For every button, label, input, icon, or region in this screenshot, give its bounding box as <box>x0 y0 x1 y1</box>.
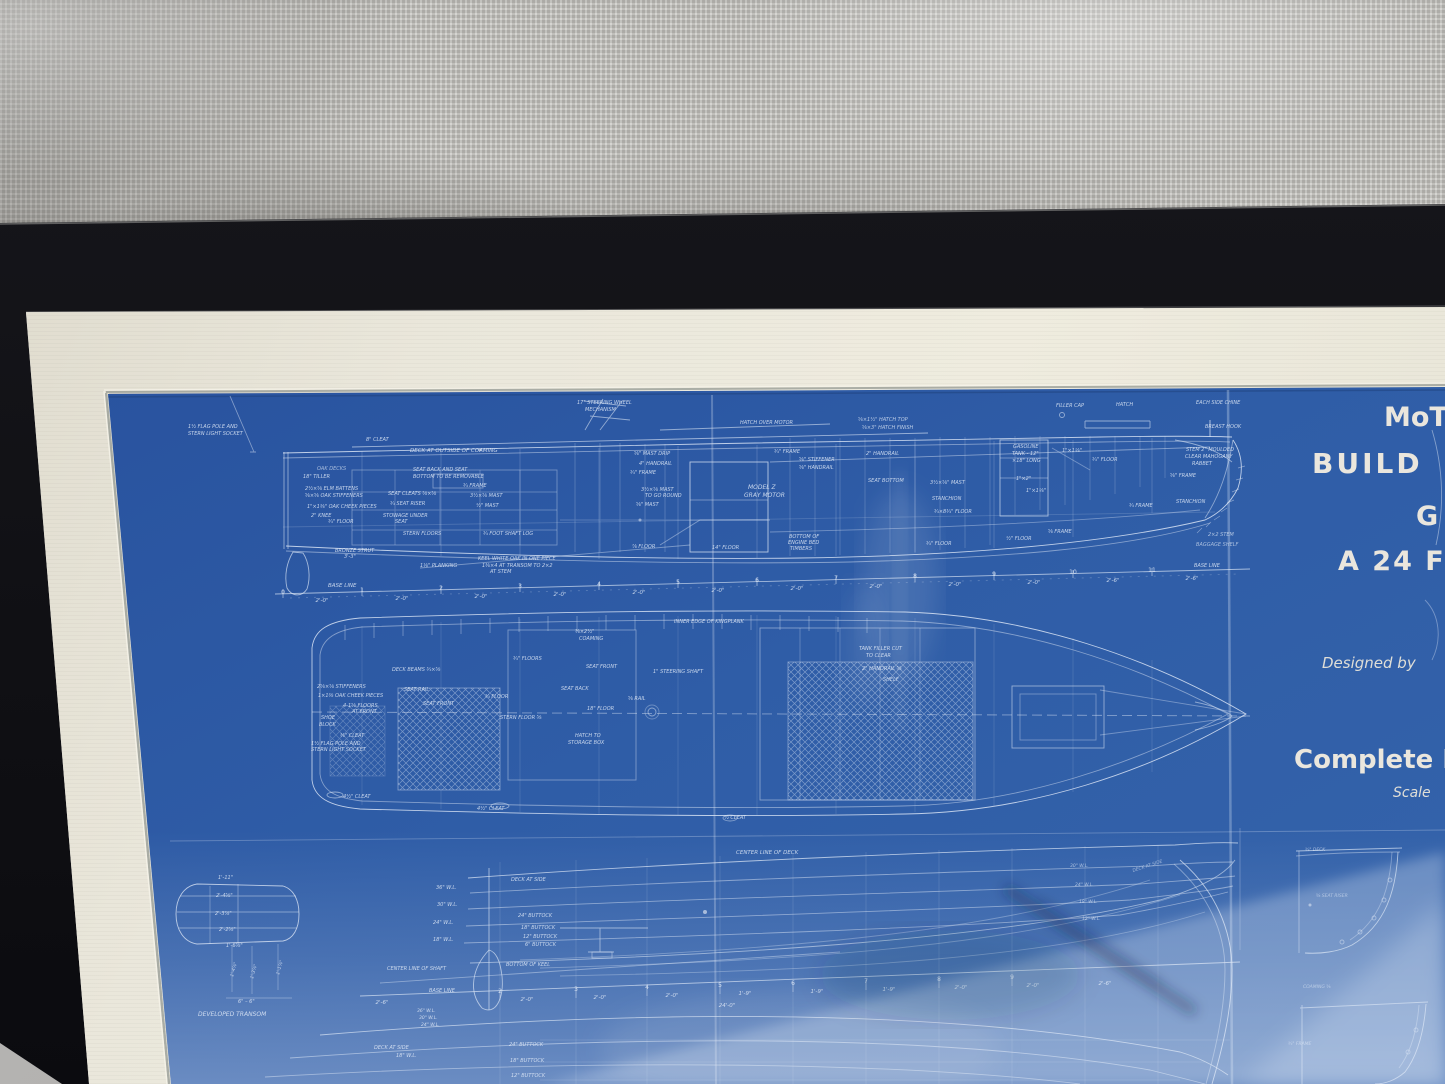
annotation-text: 0 <box>281 589 285 596</box>
annotation-text: 14" FLOOR <box>712 545 739 551</box>
annotation-text: BREAST HOOK <box>1205 424 1242 430</box>
annotation-text: 3½×⅝ MAST <box>470 492 504 499</box>
annotation-text: TO GO ROUND <box>645 493 682 499</box>
annotation-text: 7 <box>834 575 838 582</box>
annotation-text: SEAT FRONT <box>586 664 618 670</box>
annotation-text: SEAT BACK <box>561 686 589 692</box>
annotation-text: FILLER CAP <box>1056 403 1084 409</box>
annotation-text: 2'-0" <box>315 598 328 604</box>
annotation-text: ¾" FRAME <box>630 470 657 476</box>
annotation-text: 4½" CLEAT <box>477 805 505 812</box>
annotation-text: 2'-0" <box>711 588 724 594</box>
annotation-text: 2½×⅝ ELM BATTENS <box>305 485 359 492</box>
annotation-text: ¾" FLOOR <box>1092 457 1118 463</box>
annotation-text: BLOCK <box>319 722 336 728</box>
annotation-text: DECK BEAMS ¾×⅝ <box>392 667 440 673</box>
annotation-text: 9 <box>992 571 996 578</box>
annotation-text: BOTTOM TO BE REMOVABLE <box>413 474 485 480</box>
annotation-text: 1"×1⅜" OAK CHEEK PIECES <box>307 504 378 510</box>
annotation-text: BASE LINE <box>328 583 357 589</box>
annotation-text: ⅜" CLEAT <box>340 733 365 739</box>
annotation-text: 2'-6" <box>1106 578 1119 584</box>
designed-by: Designed by <box>1322 654 1417 672</box>
annotation-text: SEAT <box>395 519 408 525</box>
annotation-text: STERN FLOORS <box>403 531 442 537</box>
annotation-text: 3½×⅝" MAST <box>930 479 966 486</box>
annotation-text: 3½×⅝ MAST <box>641 486 675 493</box>
annotation-text: ¾" FLOOR <box>328 519 354 525</box>
annotation-text: ¾ FRAME <box>463 483 488 489</box>
annotation-text: HATCH OVER MOTOR <box>740 420 793 426</box>
annotation-text: SEAT BACK AND SEAT <box>413 467 468 473</box>
annotation-text: ½" MAST <box>476 502 500 509</box>
annotation-text: 2" HANDRAIL <box>866 451 899 457</box>
annotation-text: MECHANISM <box>585 407 617 413</box>
annotation-text: KEEL WHITE OAK IN ONE PIECE <box>478 556 557 562</box>
annotation-text: STERN LIGHT SOCKET <box>188 431 244 437</box>
annotation-text: SEAT CLEATS ⅝×⅝ <box>388 491 436 497</box>
annotation-text: AT STEM <box>489 569 512 575</box>
annotation-text: ½" FLOOR <box>1006 535 1032 542</box>
annotation-text: 2'-0" <box>790 586 803 592</box>
annotation-text: 1½ FLAG POLE AND <box>188 423 238 430</box>
annotation-text: DECK AT OUTSIDE OF COAMING <box>410 448 498 454</box>
annotation-text: ½ CLEAT <box>724 814 747 821</box>
annotation-text: HATCH <box>1116 402 1133 408</box>
annotation-text: 2'-0" <box>1027 580 1040 586</box>
annotation-text: HATCH TO <box>575 733 601 739</box>
annotation-text: 3 <box>518 583 522 590</box>
annotation-text: 8" CLEAT <box>366 437 390 443</box>
annotation-text: ⅝×3" HATCH FINISH <box>862 425 914 431</box>
annotation-text: 5 <box>676 579 680 586</box>
annotation-text: 4" HANDRAIL <box>639 461 672 467</box>
annotation-text: ¾ SEAT RISER <box>390 501 425 507</box>
annotation-text: STERN LIGHT SOCKET <box>311 747 367 753</box>
annotation-text: ⅝ RAIL <box>628 696 646 702</box>
annotation-text: ⅝×⅝ OAK STIFFENERS <box>305 493 364 499</box>
annotation-text: ⅞ FLOOR <box>632 544 655 550</box>
annotation-text: ¾×8¾" FLOOR <box>934 509 972 515</box>
annotation-text: RABBET <box>1192 461 1213 467</box>
annotation-text: ⅜×2½" <box>575 628 594 635</box>
framed-blueprint-photo: MoTBUILDGA 24 FDesigned byComplete HScal… <box>0 0 1445 1084</box>
annotation-text: 10 <box>1069 569 1077 576</box>
annotation-text: 1"×1⅛" <box>1026 488 1046 494</box>
annotation-text: 1⅛" PLANKING <box>420 563 457 569</box>
annotation-text: GRAY MOTOR <box>744 492 785 499</box>
annotation-text: SEAT RAIL <box>404 687 429 693</box>
annotation-text: EACH SIDE CHINE <box>1196 400 1241 406</box>
annotation-text: 17" STEERING WHEEL <box>577 400 632 406</box>
annotation-text: AT FRONT <box>351 709 378 715</box>
annotation-text: 2'-0" <box>553 592 566 598</box>
annotation-text: 2'-0" <box>395 596 408 602</box>
annotation-text: ⅝" MAST DRIP <box>634 451 670 457</box>
annotation-text: STORAGE BOX <box>568 740 605 746</box>
annotation-text: OAK DECKS <box>317 466 347 472</box>
annotation-text: 1"×1⅛" <box>1062 448 1082 454</box>
annotation-text: 2'-6" <box>1185 576 1198 582</box>
annotation-text: 3'-3" <box>344 554 356 560</box>
annotation-text: 1½ FLAG POLE AND <box>311 740 361 747</box>
annotation-text: GASOLINE <box>1013 444 1039 450</box>
title-line-3: G <box>1416 501 1438 532</box>
annotation-text: 18" TILLER <box>303 474 330 480</box>
annotation-text: ⅝" HANDRAIL <box>799 465 834 471</box>
annotation-text: 2'-0" <box>632 590 645 596</box>
annotation-text: ¾" FRAME <box>774 449 801 455</box>
annotation-text: COAMING <box>579 636 603 642</box>
annotation-text: TIMBERS <box>790 546 813 552</box>
title-line-1: MoT <box>1384 402 1445 433</box>
annotation-text: 1"×2" <box>1016 476 1031 482</box>
blueprint-artwork: MoTBUILDGA 24 FDesigned byComplete HScal… <box>0 0 1445 1084</box>
annotation-text: TANK - 12" <box>1012 451 1039 457</box>
annotation-text: ⅝×1½" HATCH TOP <box>858 416 908 423</box>
annotation-text: 2'-0" <box>948 582 961 588</box>
annotation-text: 2⅝×⅝ STIFFENERS <box>317 684 367 690</box>
title-line-4: A 24 F <box>1338 546 1445 577</box>
annotation-text: ¾ FOOT SHAFT LOG <box>483 531 533 537</box>
annotation-text: STANCHION <box>932 496 962 502</box>
annotation-text: MODEL Z <box>748 484 777 491</box>
annotation-text: ⅝" STIFFENER <box>799 457 835 463</box>
annotation-text: 11 <box>1148 567 1156 574</box>
annotation-text: 2×2 STEM <box>1208 532 1235 538</box>
title-line-2: BUILD <box>1312 447 1423 480</box>
scale-label: Scale <box>1393 785 1431 801</box>
annotation-text: 6 <box>755 577 759 584</box>
annotation-text: CLEAR MAHOGANY <box>1185 454 1233 460</box>
annotation-text: 1 <box>360 587 364 594</box>
annotation-text: STEM 2" MOULDED <box>1186 447 1234 453</box>
annotation-text: SEAT FRONT <box>423 701 455 707</box>
annotation-text: 1×1⅜ OAK CHEEK PIECES <box>318 693 384 699</box>
annotation-text: ⅝" FRAME <box>1170 473 1197 479</box>
annotation-text: ⅝ FRAME <box>1048 529 1073 535</box>
annotation-text: ×18" LONG <box>1012 458 1041 464</box>
annotation-text: INNER EDGE OF KINGPLANK <box>674 619 745 625</box>
annotation-text: ¾" FLOORS <box>513 656 543 662</box>
annotation-text: BAGGAGE SHELF <box>1196 542 1239 548</box>
annotation-text: SHOE <box>321 715 336 721</box>
annotation-text: 2'-0" <box>474 594 487 600</box>
annotation-text: BASE LINE <box>1194 563 1221 569</box>
annotation-text: STANCHION <box>1176 499 1206 505</box>
annotation-text: ¾ FLOOR <box>485 694 508 700</box>
annotation-text: ¾ FRAME <box>1129 503 1154 509</box>
annotation-text: 1" STEERING SHAFT <box>653 669 704 675</box>
annotation-text: 18" FLOOR <box>587 706 614 712</box>
annotation-text: 2 <box>439 585 443 592</box>
complete-label: Complete H <box>1294 745 1445 775</box>
annotation-text: 4 <box>597 581 601 588</box>
annotation-text: STERN FLOOR ⅝ <box>500 715 542 721</box>
annotation-text: 4½" CLEAT <box>343 793 371 800</box>
annotation-text: ⅝" MAST <box>636 502 660 508</box>
